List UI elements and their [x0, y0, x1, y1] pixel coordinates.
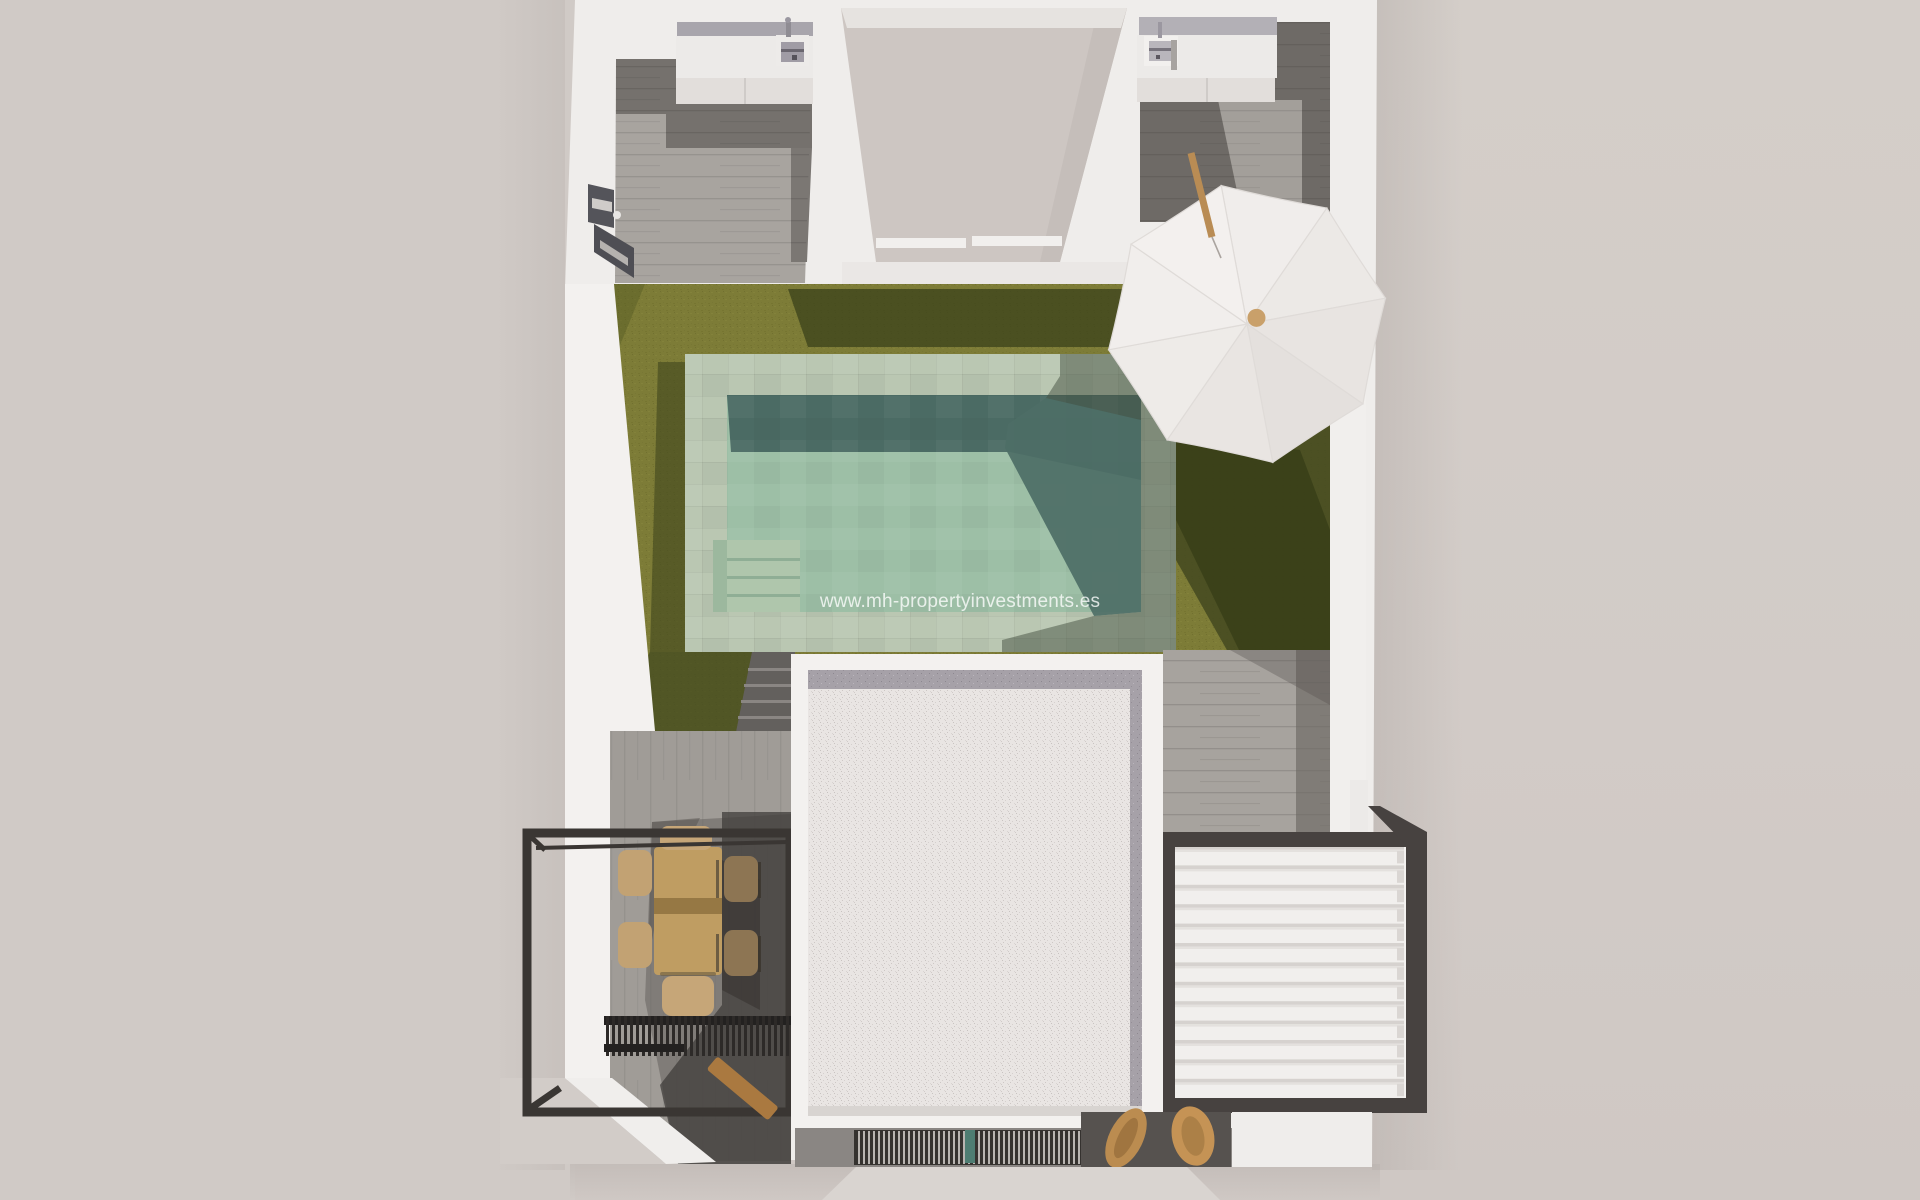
svg-text:www.mh-propertyinvestments.es: www.mh-propertyinvestments.es [819, 591, 1100, 612]
